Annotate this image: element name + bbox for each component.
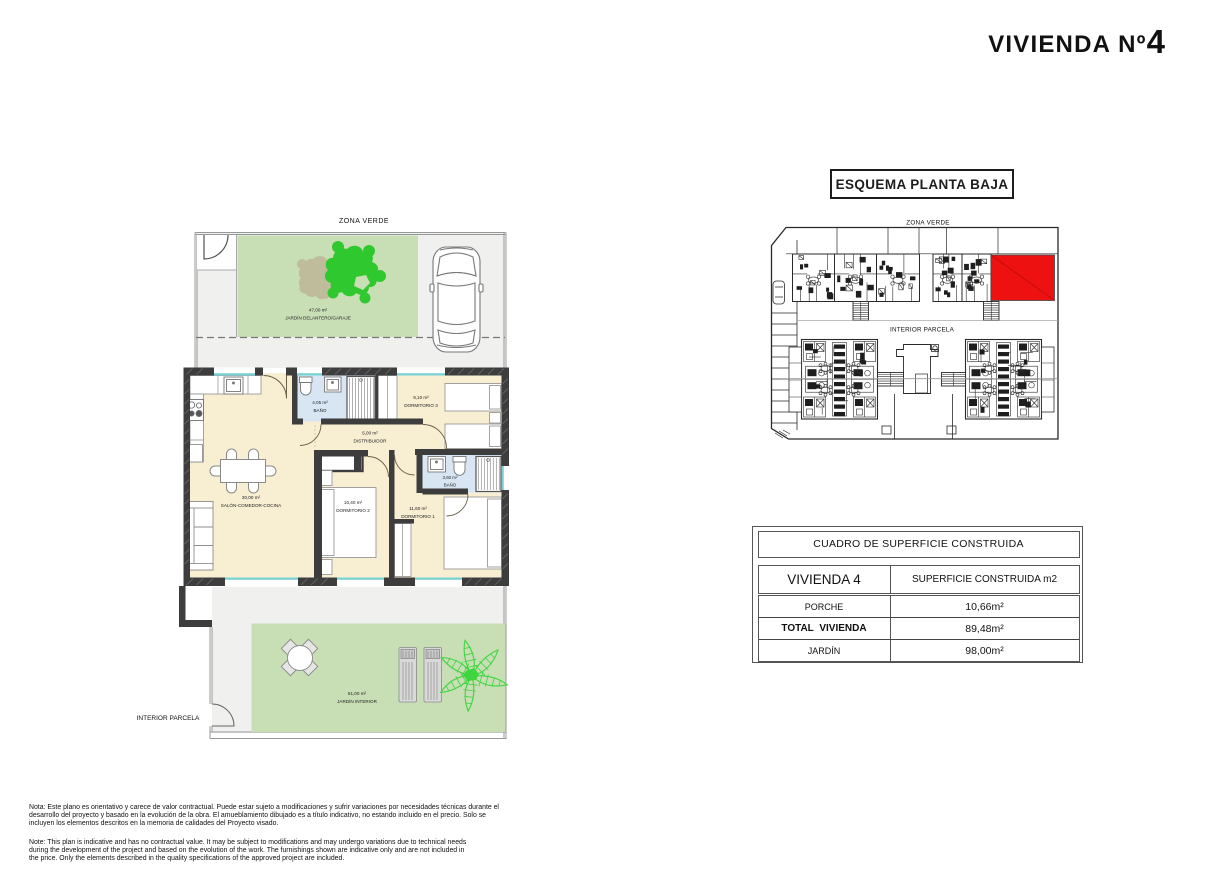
svg-text:5,00 m²: 5,00 m² xyxy=(362,431,378,436)
svg-text:3,60 m²: 3,60 m² xyxy=(443,475,458,480)
svg-text:ZONA VERDE: ZONA VERDE xyxy=(906,220,950,227)
svg-text:51,00 m²: 51,00 m² xyxy=(348,691,367,696)
svg-text:ZONA VERDE: ZONA VERDE xyxy=(339,218,389,225)
svg-text:30,00 m²: 30,00 m² xyxy=(242,495,261,500)
svg-text:4,05 m²: 4,05 m² xyxy=(312,400,328,405)
svg-text:DISTRIBUIDOR: DISTRIBUIDOR xyxy=(354,439,388,444)
svg-text:DORMITORIO 3: DORMITORIO 3 xyxy=(404,403,438,408)
svg-text:BAÑO: BAÑO xyxy=(444,483,457,488)
svg-text:INTERIOR PARCELA: INTERIOR PARCELA xyxy=(137,715,200,722)
svg-text:10,40 m²: 10,40 m² xyxy=(344,500,363,505)
svg-text:INTERIOR PARCELA: INTERIOR PARCELA xyxy=(890,327,955,334)
svg-text:DORMITORIO 1: DORMITORIO 1 xyxy=(401,514,435,519)
svg-text:SALÓN-COMEDOR-COCINA: SALÓN-COMEDOR-COCINA xyxy=(221,502,282,508)
svg-text:DORMITORIO 2: DORMITORIO 2 xyxy=(336,508,370,513)
svg-text:9,10 m²: 9,10 m² xyxy=(413,395,429,400)
svg-text:BAÑO: BAÑO xyxy=(313,407,326,413)
svg-text:47,00 m²: 47,00 m² xyxy=(309,308,328,313)
svg-text:11,60 m²: 11,60 m² xyxy=(409,506,427,511)
svg-text:JARDÍN INTERIOR: JARDÍN INTERIOR xyxy=(337,698,377,704)
svg-text:JARDÍN DELANTERO/GARAJE: JARDÍN DELANTERO/GARAJE xyxy=(285,315,351,321)
